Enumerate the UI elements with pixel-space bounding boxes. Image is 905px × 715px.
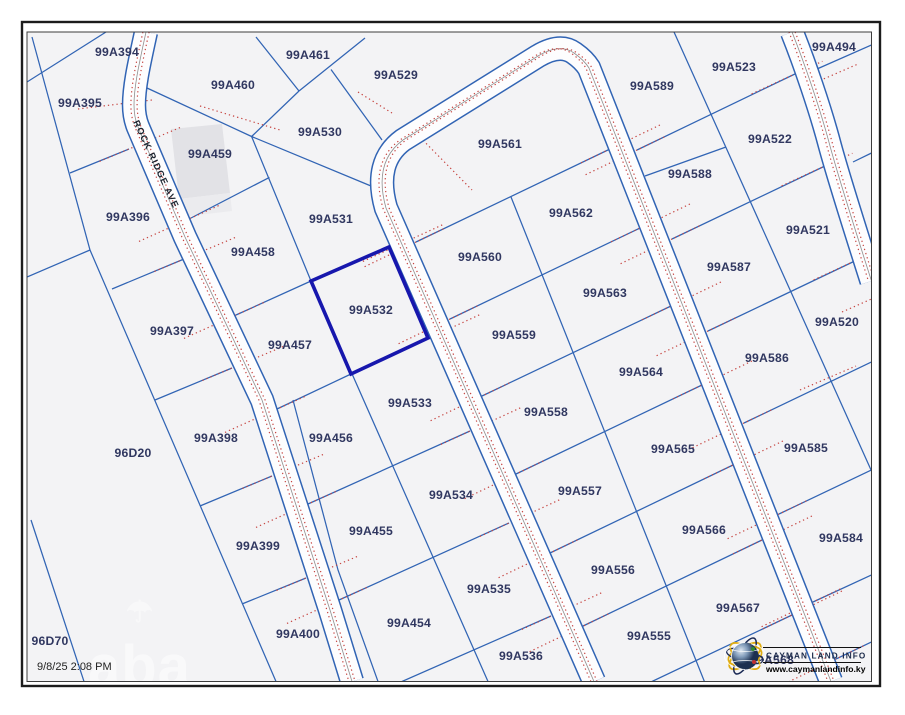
- svg-text:CAYMAN LAND INFO: CAYMAN LAND INFO: [766, 652, 866, 661]
- svg-text:99A563: 99A563: [583, 286, 627, 300]
- svg-text:☂: ☂: [126, 596, 153, 629]
- svg-text:99A397: 99A397: [150, 324, 194, 338]
- svg-text:99A532: 99A532: [349, 303, 393, 317]
- svg-text:99A522: 99A522: [748, 132, 792, 146]
- svg-text:99A456: 99A456: [309, 431, 353, 445]
- svg-text:99A457: 99A457: [268, 338, 312, 352]
- svg-text:99A560: 99A560: [458, 250, 502, 264]
- svg-text:99A460: 99A460: [211, 78, 255, 92]
- svg-text:99A461: 99A461: [286, 48, 330, 62]
- svg-text:99A394: 99A394: [95, 45, 139, 59]
- svg-text:99A459: 99A459: [188, 147, 232, 161]
- svg-text:99A556: 99A556: [591, 563, 635, 577]
- svg-text:99A587: 99A587: [707, 260, 751, 274]
- svg-text:www.caymanlandinfo.ky: www.caymanlandinfo.ky: [765, 664, 866, 674]
- svg-text:99A398: 99A398: [194, 431, 238, 445]
- svg-text:99A530: 99A530: [298, 125, 342, 139]
- svg-text:99A561: 99A561: [478, 137, 522, 151]
- svg-text:99A558: 99A558: [524, 405, 568, 419]
- svg-text:99A521: 99A521: [786, 223, 830, 237]
- svg-text:99A534: 99A534: [429, 488, 473, 502]
- svg-text:99A458: 99A458: [231, 245, 275, 259]
- svg-text:96D20: 96D20: [115, 446, 152, 460]
- svg-text:99A586: 99A586: [745, 351, 789, 365]
- svg-text:99A520: 99A520: [815, 315, 859, 329]
- svg-text:99A523: 99A523: [712, 60, 756, 74]
- svg-text:99A584: 99A584: [819, 531, 863, 545]
- svg-text:99A559: 99A559: [492, 328, 536, 342]
- svg-text:99A531: 99A531: [309, 212, 353, 226]
- svg-text:99A399: 99A399: [236, 539, 280, 553]
- svg-text:99A533: 99A533: [388, 396, 432, 410]
- svg-text:99A566: 99A566: [682, 523, 726, 537]
- svg-text:99A396: 99A396: [106, 210, 150, 224]
- svg-text:99A536: 99A536: [499, 649, 543, 663]
- svg-text:99A589: 99A589: [630, 79, 674, 93]
- svg-text:99A562: 99A562: [549, 206, 593, 220]
- svg-text:99A535: 99A535: [467, 582, 511, 596]
- svg-text:99A588: 99A588: [668, 167, 712, 181]
- svg-text:99A555: 99A555: [627, 629, 671, 643]
- svg-text:99A585: 99A585: [784, 441, 828, 455]
- svg-text:99A557: 99A557: [558, 484, 602, 498]
- svg-text:9/8/25 2:08 PM: 9/8/25 2:08 PM: [37, 661, 112, 673]
- svg-text:99A400: 99A400: [276, 627, 320, 641]
- svg-text:99A494: 99A494: [812, 40, 856, 54]
- svg-text:99A529: 99A529: [374, 68, 418, 82]
- svg-text:99A565: 99A565: [651, 442, 695, 456]
- svg-text:99A454: 99A454: [387, 616, 431, 630]
- svg-text:96D70: 96D70: [32, 634, 69, 648]
- svg-text:99A564: 99A564: [619, 365, 663, 379]
- svg-text:99A455: 99A455: [349, 524, 393, 538]
- svg-text:99A395: 99A395: [58, 96, 102, 110]
- svg-text:99A567: 99A567: [716, 601, 760, 615]
